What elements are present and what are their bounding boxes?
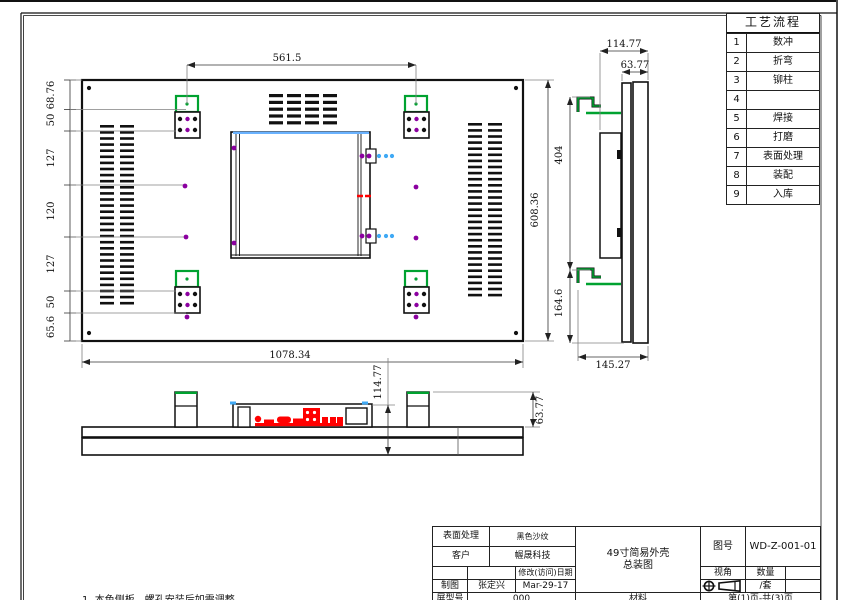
process-step-no: 2 — [726, 52, 747, 72]
blue-hole-dot — [377, 154, 381, 158]
purple-hole-dot — [414, 185, 419, 190]
blue-hole-dot — [390, 154, 394, 158]
third-angle-projection-icon — [702, 580, 744, 592]
process-step-no: 1 — [726, 33, 747, 53]
hook-lower — [578, 269, 621, 284]
hook-upper — [578, 98, 621, 113]
revision-label: 修改(访问)日期 — [515, 566, 576, 580]
blue-tick-left — [230, 402, 236, 405]
process-step-name: 折弯 — [746, 52, 820, 72]
process-step-name: 入库 — [746, 185, 820, 205]
purple-hole-dot — [232, 241, 237, 246]
dim-chain-7: 65.6 — [46, 316, 57, 338]
screw-dot — [87, 86, 91, 90]
bottom-view — [82, 392, 523, 455]
blank-cell — [785, 579, 821, 593]
blue-tick-right — [362, 402, 368, 405]
model-label: 屏型号 — [432, 592, 468, 600]
io-assembly — [230, 402, 372, 428]
blue-hole-dot — [384, 154, 388, 158]
process-step-no: 4 — [726, 90, 747, 110]
dim-chain-1: 68.76 — [46, 81, 57, 110]
dim-side-depth: 114.77 — [607, 39, 642, 50]
center-chassis — [231, 132, 376, 258]
purple-hole-dot — [414, 236, 419, 241]
surface-label: 表面处理 — [432, 526, 490, 547]
process-step-no: 7 — [726, 147, 747, 167]
purple-hole-dot — [360, 234, 365, 239]
process-step-name: 表面处理 — [746, 147, 820, 167]
purple-hole-dot — [367, 154, 372, 159]
dim-side-inner-depth: 63.77 — [621, 60, 650, 71]
drawing-no: WD-Z-001-01 — [745, 526, 821, 567]
blank-cell — [432, 566, 468, 580]
model-value: 000 — [467, 592, 576, 600]
customer-value: 幄晟科技 — [489, 546, 576, 567]
drawing-canvas: 561.5 1078.34 608.36 68.76 50 127 120 12… — [0, 0, 850, 600]
process-step-name: 数冲 — [746, 33, 820, 53]
dim-side-upper-span: 404 — [554, 145, 565, 164]
qty-label: 数量 — [745, 566, 786, 580]
mount-bracket — [175, 96, 200, 138]
process-step-no: 3 — [726, 71, 747, 91]
dim-chain-5: 127 — [46, 254, 57, 273]
draft-date: Mar-29-17 — [515, 579, 576, 593]
purple-hole-dot — [232, 146, 237, 151]
process-step-no: 8 — [726, 166, 747, 186]
mount-bracket — [404, 271, 429, 319]
blue-hole-dot — [384, 234, 388, 238]
blank-cell — [467, 566, 516, 580]
purple-hole-dot — [184, 235, 189, 240]
projection-symbol-cell — [700, 579, 746, 593]
process-step-name: 焊接 — [746, 109, 820, 129]
dim-side-lower-span: 164.6 — [554, 289, 565, 318]
purple-hole-dot — [360, 154, 365, 159]
drawing-title: 49寸简易外壳 总装图 — [575, 526, 701, 593]
cad-sheet: 561.5 1078.34 608.36 68.76 50 127 120 12… — [0, 0, 850, 600]
dim-chain-4: 120 — [46, 201, 57, 220]
qty-value: /套 — [745, 579, 786, 593]
process-step-name — [746, 90, 820, 110]
draft-name: 张定兴 — [467, 579, 516, 593]
customer-label: 客户 — [432, 546, 490, 567]
process-step-name: 铆柱 — [746, 71, 820, 91]
material-label: 材料 — [575, 592, 701, 600]
blue-hole-dot — [390, 234, 394, 238]
mount-bracket — [175, 271, 200, 319]
mount-bracket — [404, 96, 429, 138]
blue-hole-dot — [377, 234, 381, 238]
dim-bottom-depth: 114.77 — [373, 365, 384, 400]
io-connector-box — [346, 408, 367, 424]
post-right — [407, 392, 429, 427]
screw-dot — [514, 86, 518, 90]
process-step-no: 5 — [726, 109, 747, 129]
process-step-no: 6 — [726, 128, 747, 148]
process-step-name: 装配 — [746, 166, 820, 186]
drawing-no-label: 图号 — [700, 526, 746, 567]
dim-chain-2: 50 — [46, 114, 57, 127]
side-view — [578, 82, 648, 343]
dim-overall-height: 608.36 — [530, 193, 541, 228]
dim-overall-width: 1078.34 — [269, 350, 310, 361]
purple-hole-dot — [183, 184, 188, 189]
post-left — [175, 392, 197, 427]
dim-chain-6: 50 — [46, 296, 57, 309]
screw-dot — [87, 331, 91, 335]
sheet-note: 1. 本色侧板，螺孔安装后如需调整 — [82, 591, 235, 600]
surface-value: 黑色沙纹 — [489, 526, 576, 547]
purple-hole-dot — [367, 234, 372, 239]
process-step-name: 打磨 — [746, 128, 820, 148]
process-step-no: 9 — [726, 185, 747, 205]
dim-bottom-bracket-depth: 63.77 — [535, 396, 546, 425]
page-info: 第(1)页-共(3)页 — [700, 592, 821, 600]
dim-side-bottom-width: 145.27 — [596, 360, 631, 371]
draft-label: 制图 — [432, 579, 468, 593]
screw-dot — [514, 331, 518, 335]
view-angle-label: 视角 — [700, 566, 746, 580]
blank-cell — [785, 566, 821, 580]
process-table-title: 工艺流程 — [726, 13, 820, 34]
dim-top-width: 561.5 — [273, 53, 302, 64]
dim-chain-3: 127 — [46, 148, 57, 167]
